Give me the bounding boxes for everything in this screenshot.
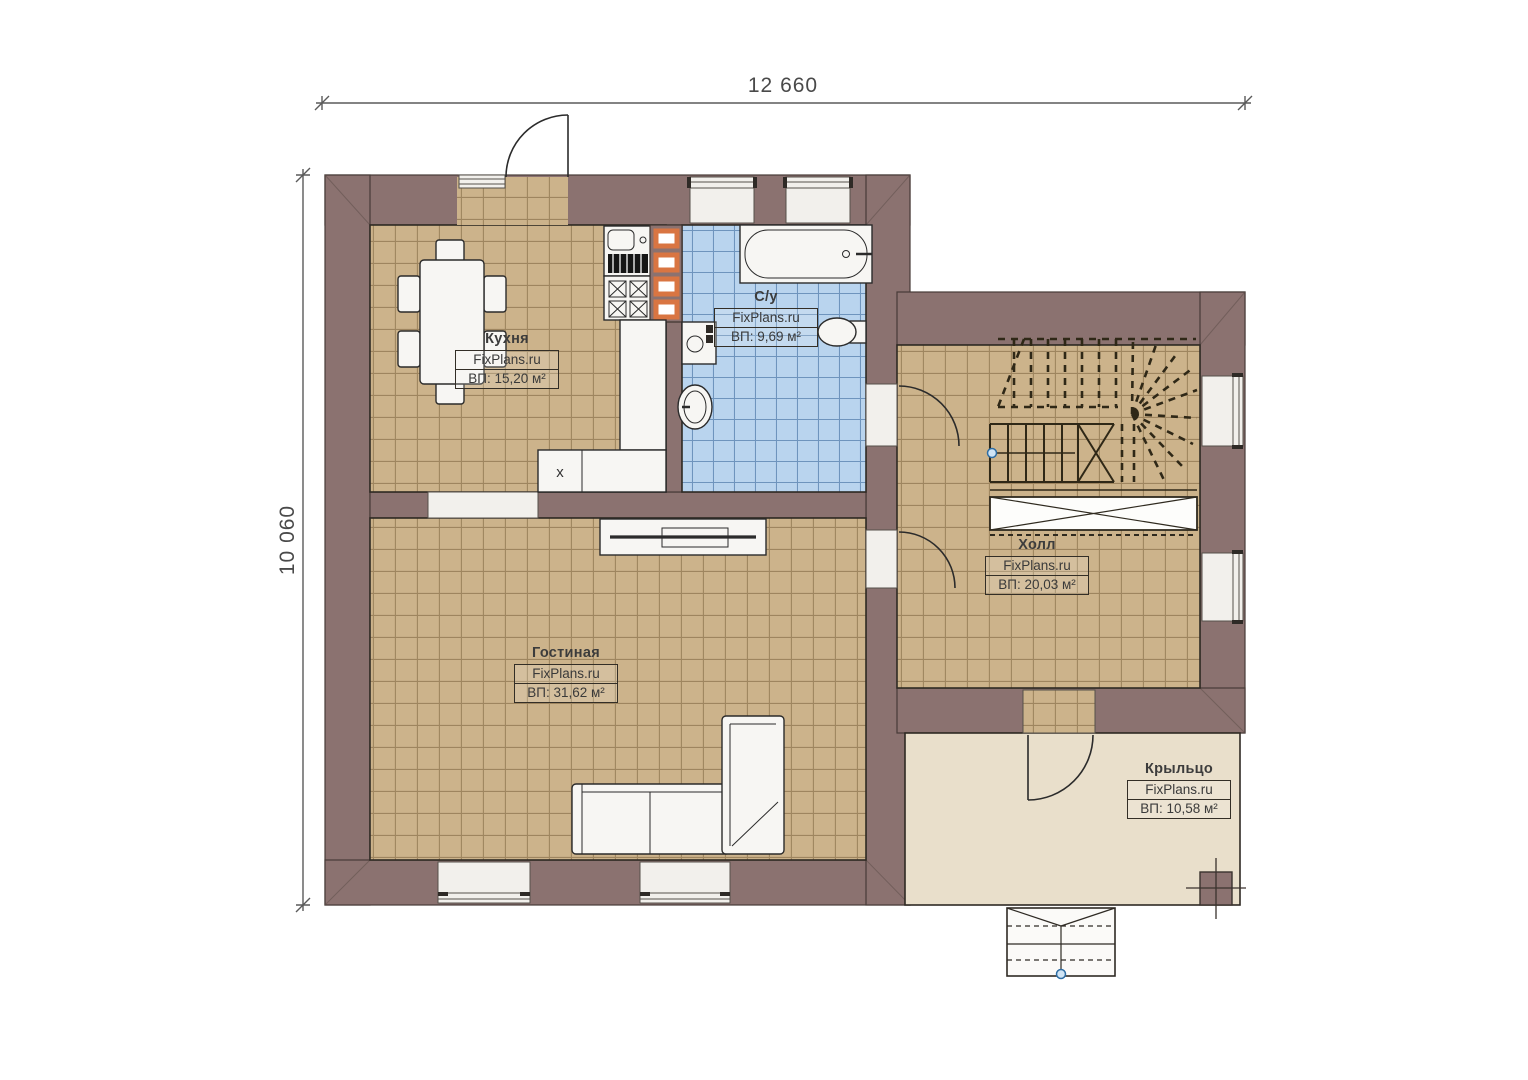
watermark: FixPlans.ru: [1128, 781, 1230, 800]
kitchen-living-opening: [428, 492, 538, 518]
window-bottom-2: [640, 862, 730, 903]
wall-wing-right: [1200, 292, 1245, 733]
wall-bottom: [325, 860, 910, 905]
bathtub: [740, 225, 872, 283]
room-area: ВП: 10,58 м²: [1128, 800, 1230, 818]
room-info-box: FixPlans.ru ВП: 15,20 м²: [455, 350, 559, 389]
fridge-mark: x: [556, 464, 564, 481]
floor-plan-drawing: x: [0, 0, 1528, 1080]
window-bottom-1: [438, 862, 530, 903]
closet-under-stairs: [990, 497, 1197, 535]
entrance-door: [506, 115, 568, 177]
watermark: FixPlans.ru: [986, 557, 1088, 576]
kitchen-counter: [620, 320, 666, 450]
room-label-living-room: Гостиная FixPlans.ru ВП: 31,62 м²: [514, 645, 618, 703]
tv-console: [600, 519, 766, 555]
wall-wing-top: [897, 292, 1245, 345]
room-name: Гостиная: [514, 645, 618, 661]
dining-chair: [484, 276, 506, 312]
stair-start-marker: [988, 449, 997, 458]
window-right-1: [1202, 373, 1243, 449]
stove: [604, 276, 652, 320]
window-right-2: [1202, 550, 1243, 624]
entrance-steps: [1007, 908, 1115, 979]
bathroom-door-opening: [866, 384, 897, 446]
room-area: ВП: 9,69 м²: [715, 328, 817, 346]
dimension-height-label: 10 060: [276, 505, 300, 575]
room-area: ВП: 20,03 м²: [986, 576, 1088, 594]
wall-left: [325, 175, 370, 905]
entrance-sidelight-window: [459, 175, 505, 188]
room-info-box: FixPlans.ru ВП: 20,03 м²: [985, 556, 1089, 595]
room-area: ВП: 31,62 м²: [515, 684, 617, 702]
room-label-porch: Крыльцо FixPlans.ru ВП: 10,58 м²: [1127, 761, 1231, 819]
bathroom-sink: [678, 385, 712, 429]
window-top-1: [687, 177, 757, 223]
room-info-box: FixPlans.ru ВП: 31,62 м²: [514, 664, 618, 703]
watermark: FixPlans.ru: [715, 309, 817, 328]
room-label-hall: Холл FixPlans.ru ВП: 20,03 м²: [985, 537, 1089, 595]
living-room-door-opening: [866, 530, 897, 588]
room-label-kitchen: Кухня FixPlans.ru ВП: 15,20 м²: [455, 331, 559, 389]
dining-chair: [398, 276, 420, 312]
window-top-2: [783, 177, 853, 223]
dimension-width-label: 12 660: [748, 74, 818, 98]
room-info-box: FixPlans.ru ВП: 10,58 м²: [1127, 780, 1231, 819]
washing-machine: [682, 322, 716, 364]
room-info-box: FixPlans.ru ВП: 9,69 м²: [714, 308, 818, 347]
room-name: Холл: [985, 537, 1089, 553]
room-label-bathroom: С/у FixPlans.ru ВП: 9,69 м²: [714, 289, 818, 347]
kitchen-sink: [604, 226, 652, 276]
watermark: FixPlans.ru: [515, 665, 617, 684]
toilet: [818, 318, 866, 346]
room-name: С/у: [714, 289, 818, 305]
watermark: FixPlans.ru: [456, 351, 558, 370]
room-area: ВП: 15,20 м²: [456, 370, 558, 388]
room-name: Кухня: [455, 331, 559, 347]
floor-plan: x: [0, 0, 1528, 1080]
dining-chair: [436, 240, 464, 262]
porch-floor: [905, 733, 1240, 905]
dining-chair: [398, 331, 420, 367]
porch-door-tiles: [1023, 690, 1095, 733]
kitchen-cabinet-shelves: [650, 225, 682, 322]
room-name: Крыльцо: [1127, 761, 1231, 777]
